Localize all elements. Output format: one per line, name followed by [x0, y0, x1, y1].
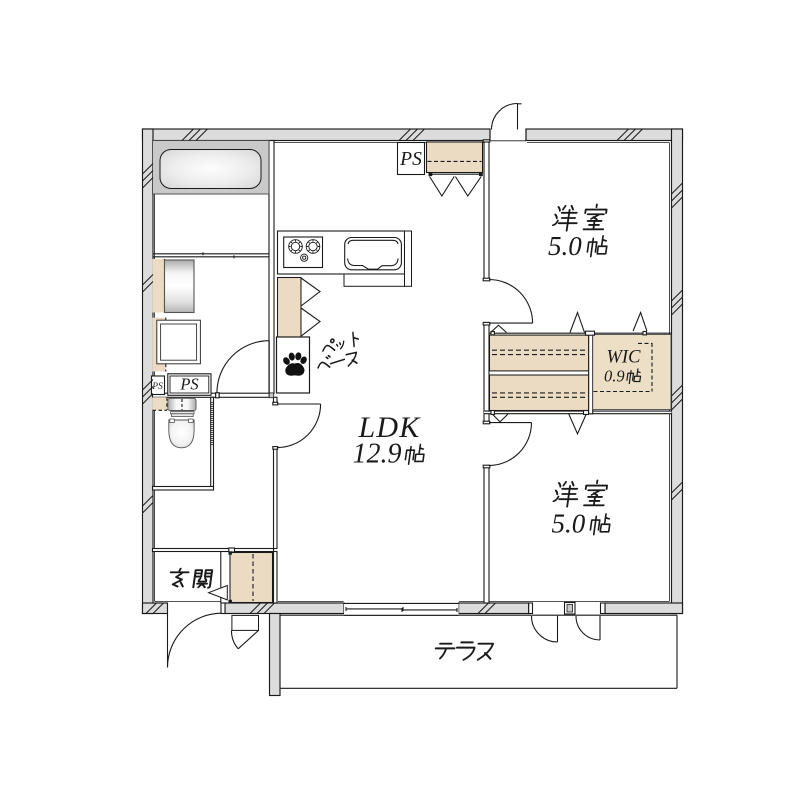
svg-text:12.9: 12.9: [353, 439, 402, 470]
svg-text:WIC: WIC: [607, 348, 642, 368]
svg-text:5.0: 5.0: [552, 509, 586, 539]
svg-text:PS: PS: [179, 375, 198, 394]
svg-text:PS: PS: [399, 149, 422, 170]
svg-text:0.9: 0.9: [604, 367, 625, 386]
svg-text:5.0: 5.0: [548, 231, 582, 261]
